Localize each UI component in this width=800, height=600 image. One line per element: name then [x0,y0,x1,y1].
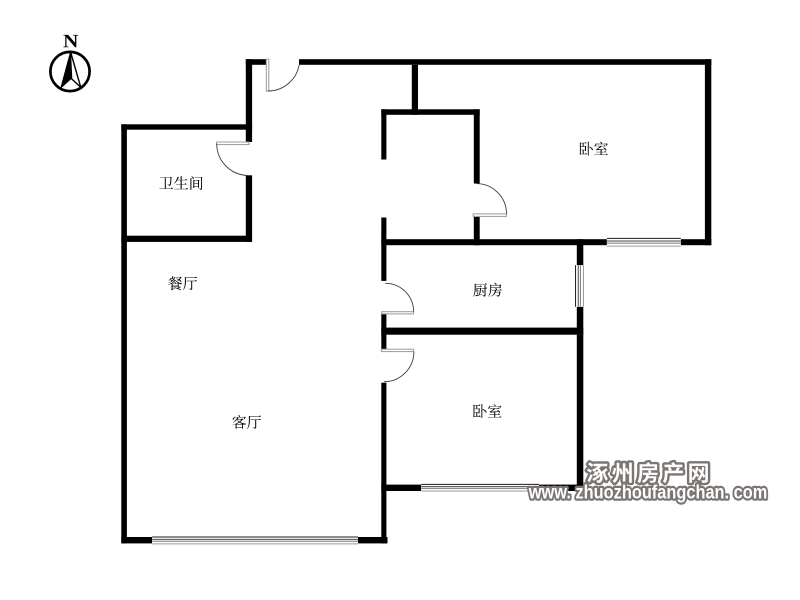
svg-text:www. zhuozhoufangchan. com: www. zhuozhoufangchan. com [528,482,767,504]
